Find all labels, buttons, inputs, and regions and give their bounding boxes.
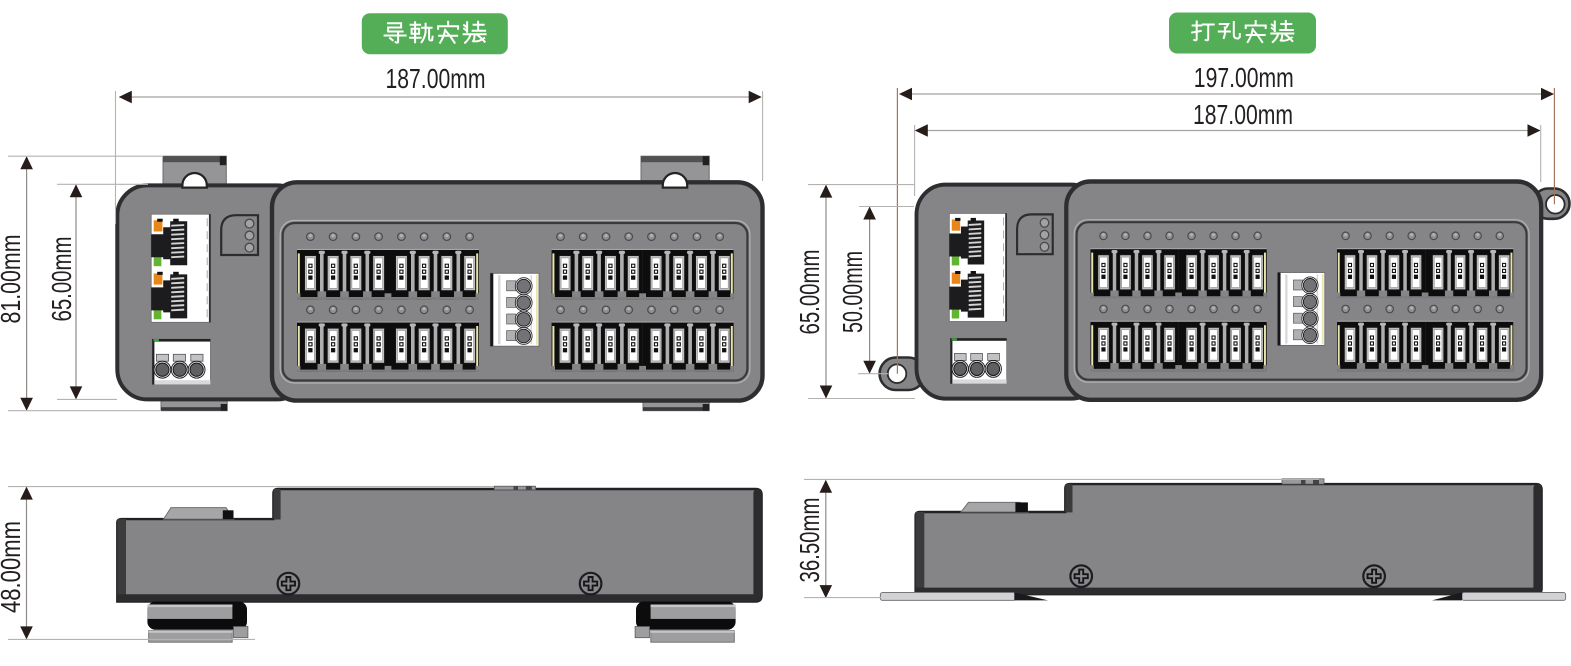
svg-text:81.00mm: 81.00mm [0,235,26,324]
svg-text:65.00mm: 65.00mm [794,250,825,335]
svg-text:187.00mm: 187.00mm [1193,99,1293,130]
svg-text:65.00mm: 65.00mm [46,237,77,322]
svg-text:36.50mm: 36.50mm [794,498,825,583]
svg-text:197.00mm: 197.00mm [1194,62,1294,93]
svg-text:48.00mm: 48.00mm [0,521,26,613]
svg-text:187.00mm: 187.00mm [386,63,486,94]
svg-text:50.00mm: 50.00mm [837,251,868,333]
